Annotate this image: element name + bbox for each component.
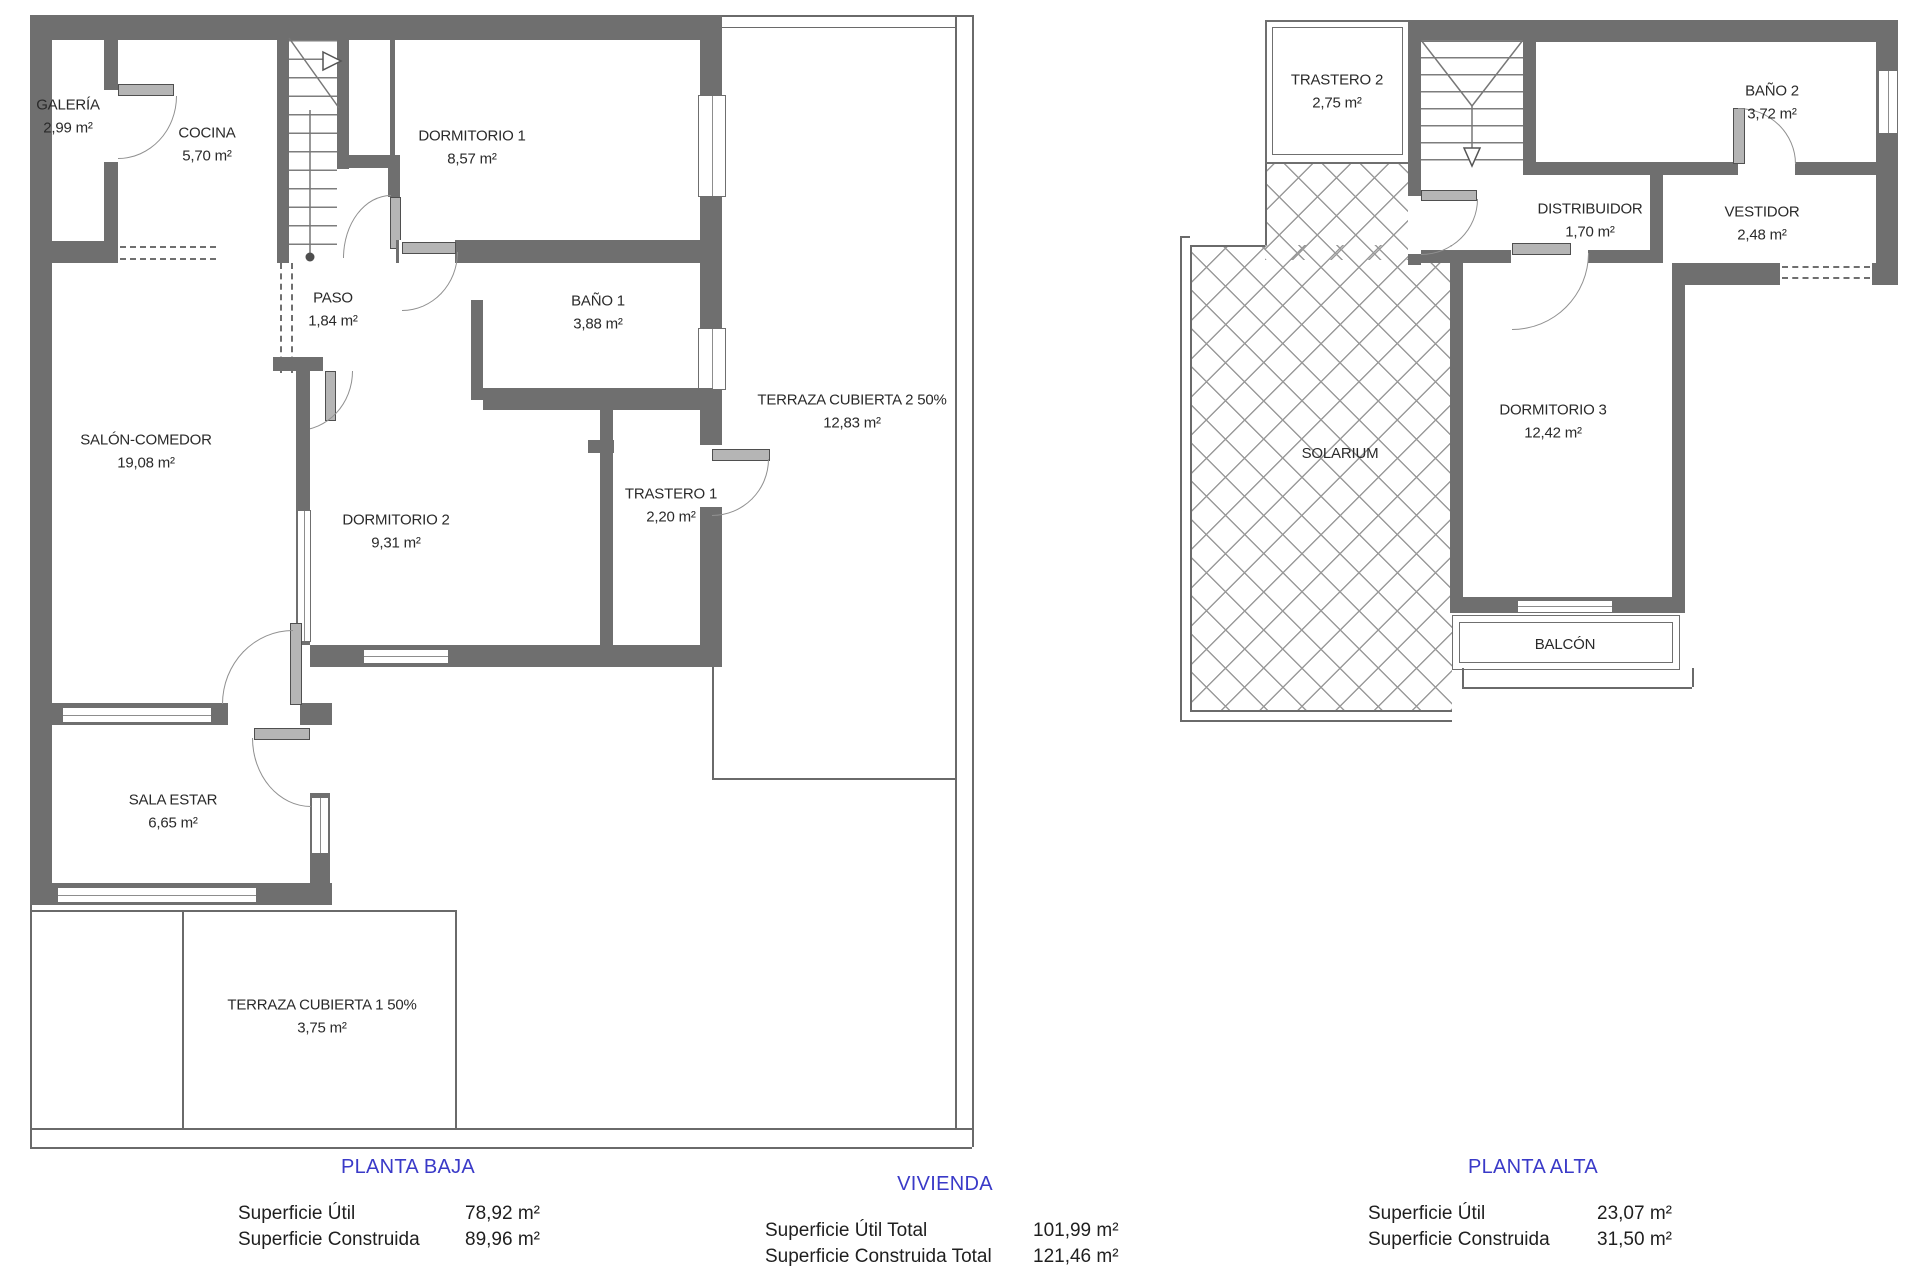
stairs-up-arrow-icon <box>277 30 352 270</box>
wall <box>1523 162 1738 175</box>
summary-title-planta-alta: PLANTA ALTA <box>1368 1155 1698 1179</box>
wall <box>471 300 483 400</box>
wall <box>30 15 722 40</box>
window <box>698 328 726 390</box>
boundary-line <box>1180 236 1182 720</box>
room-area: 2,75 m² <box>1291 92 1383 115</box>
room-area: 8,57 m² <box>418 148 525 171</box>
summary-title-vivienda: VIVIENDA <box>765 1172 1125 1196</box>
room-label-cocina: COCINA 5,70 m² <box>178 123 235 168</box>
door-opening <box>1408 196 1421 254</box>
summary-value: 101,99 m² <box>1033 1218 1119 1244</box>
room-label-distribuidor: DISTRIBUIDOR 1,70 m² <box>1537 199 1642 244</box>
door-opening <box>310 725 330 793</box>
room-area: 5,70 m² <box>178 145 235 168</box>
window <box>311 797 329 854</box>
boundary-line <box>182 910 184 1128</box>
wall <box>483 388 713 410</box>
boundary-line <box>1190 710 1452 712</box>
room-label-bano1: BAÑO 1 3,88 m² <box>571 291 625 336</box>
boundary-line <box>1692 668 1694 687</box>
stairs-down-arrow-icon <box>1421 40 1523 180</box>
room-area: 3,72 m² <box>1745 103 1799 126</box>
summary-row: Superficie Útil Total 101,99 m² <box>765 1218 1125 1244</box>
room-area: 9,31 m² <box>342 532 449 555</box>
summary-value: 31,50 m² <box>1597 1227 1672 1253</box>
room-label-trastero2: TRASTERO 2 2,75 m² <box>1291 70 1383 115</box>
room-label-dormitorio1: DORMITORIO 1 8,57 m² <box>418 126 525 171</box>
door-arc <box>1512 253 1589 330</box>
room-label-dormitorio3: DORMITORIO 3 12,42 m² <box>1499 400 1606 445</box>
dashed-line <box>120 258 216 260</box>
dashed-line <box>120 246 216 248</box>
door-arc <box>222 630 293 704</box>
room-name: PASO <box>308 288 357 311</box>
room-label-galeria: GALERÍA 2,99 m² <box>36 95 100 140</box>
wall <box>273 357 323 371</box>
room-name: TRASTERO 2 <box>1291 70 1383 93</box>
summary-row: Superficie Construida 31,50 m² <box>1368 1227 1698 1253</box>
room-label-terraza-cubierta1: TERRAZA CUBIERTA 1 50% 3,75 m² <box>227 995 416 1040</box>
room-area: 2,99 m² <box>36 117 100 140</box>
summary-label: Superficie Construida <box>238 1227 465 1253</box>
boundary-line <box>30 1147 972 1149</box>
floor-plan-sheet: GALERÍA 2,99 m² COCINA 5,70 m² DORMITORI… <box>0 0 1920 1280</box>
room-name: VESTIDOR <box>1724 202 1799 225</box>
room-label-balcon: BALCÓN <box>1535 634 1596 657</box>
wall <box>1672 263 1685 613</box>
door-arc <box>712 459 769 516</box>
wall <box>1588 250 1650 263</box>
room-label-paso: PASO 1,84 m² <box>308 288 357 333</box>
summary-label: Superficie Útil <box>1368 1201 1597 1227</box>
room-name: SOLARIUM <box>1302 443 1379 466</box>
room-name: BAÑO 1 <box>571 291 625 314</box>
door-arc <box>118 96 177 159</box>
wall <box>1876 20 1898 285</box>
boundary-line <box>1462 687 1692 689</box>
boundary-line <box>1180 720 1452 722</box>
door-leaf <box>118 84 174 96</box>
summary-row: Superficie Construida 89,96 m² <box>238 1227 578 1253</box>
wall <box>390 39 395 155</box>
wall <box>588 440 614 453</box>
boundary-line <box>712 662 714 778</box>
door-opening <box>228 703 300 725</box>
summary-title-planta-baja: PLANTA BAJA <box>238 1155 578 1179</box>
boundary-line <box>1180 236 1190 238</box>
summary-label: Superficie Útil Total <box>765 1218 1033 1244</box>
boundary-line <box>1190 245 1265 247</box>
boundary-line <box>722 15 972 17</box>
boundary-line <box>712 778 955 780</box>
summary-row: Superficie Construida Total 121,46 m² <box>765 1244 1125 1270</box>
summary-label: Superficie Construida Total <box>765 1244 1033 1270</box>
room-area: 3,88 m² <box>571 313 625 336</box>
dashed-line <box>1782 266 1870 268</box>
dwelling-summary: VIVIENDA Superficie Útil Total 101,99 m²… <box>765 1172 1125 1270</box>
room-area: 2,20 m² <box>625 506 717 529</box>
room-name: DORMITORIO 2 <box>342 510 449 533</box>
boundary-line <box>1462 668 1464 687</box>
door-opening <box>104 90 118 162</box>
summary-rows: Superficie Útil Total 101,99 m² Superfic… <box>765 1218 1125 1270</box>
room-area: 19,08 m² <box>80 452 212 475</box>
room-label-vestidor: VESTIDOR 2,48 m² <box>1724 202 1799 247</box>
door-arc <box>252 738 311 807</box>
room-area: 3,75 m² <box>227 1017 416 1040</box>
wall <box>1523 40 1536 175</box>
boundary-line <box>1190 245 1192 710</box>
summary-value: 89,96 m² <box>465 1227 540 1253</box>
room-label-bano2: BAÑO 2 3,72 m² <box>1745 81 1799 126</box>
room-area: 1,70 m² <box>1537 221 1642 244</box>
room-name: BAÑO 2 <box>1745 81 1799 104</box>
door-arc <box>402 252 458 311</box>
wall <box>1650 175 1663 263</box>
room-label-solarium: SOLARIUM <box>1302 443 1379 466</box>
summary-value: 78,92 m² <box>465 1201 540 1227</box>
boundary-line <box>30 905 32 1147</box>
summary-value: 23,07 m² <box>1597 1201 1672 1227</box>
window <box>57 887 257 903</box>
ground-floor-summary: PLANTA BAJA Superficie Útil 78,92 m² Sup… <box>238 1155 578 1253</box>
window <box>62 707 212 723</box>
window <box>1517 600 1613 613</box>
boundary-line <box>1265 160 1267 245</box>
summary-label: Superficie Útil <box>238 1201 465 1227</box>
wall <box>1450 260 1463 613</box>
room-area: 12,83 m² <box>757 412 946 435</box>
room-label-terraza-cubierta2: TERRAZA CUBIERTA 2 50% 12,83 m² <box>757 390 946 435</box>
boundary-line <box>455 910 457 1128</box>
wall <box>30 241 118 263</box>
room-name: DORMITORIO 1 <box>418 126 525 149</box>
boundary-line <box>722 27 955 28</box>
room-name: DISTRIBUIDOR <box>1537 199 1642 222</box>
window <box>363 649 449 664</box>
boundary-line <box>955 15 957 1128</box>
room-name: BALCÓN <box>1535 634 1596 657</box>
dashed-line <box>1782 277 1870 279</box>
room-area: 12,42 m² <box>1499 422 1606 445</box>
solarium-hatch <box>1190 245 1452 710</box>
room-name: TERRAZA CUBIERTA 2 50% <box>757 390 946 413</box>
room-name: TRASTERO 1 <box>625 484 717 507</box>
room-name: COCINA <box>178 123 235 146</box>
boundary-line <box>30 910 455 912</box>
room-name: DORMITORIO 3 <box>1499 400 1606 423</box>
boundary-line <box>30 1128 972 1130</box>
room-name: GALERÍA <box>36 95 100 118</box>
window <box>1878 70 1898 134</box>
room-area: 2,48 m² <box>1724 224 1799 247</box>
summary-rows: Superficie Útil 23,07 m² Superficie Cons… <box>1368 1201 1698 1253</box>
room-area: 1,84 m² <box>308 310 357 333</box>
room-name: SALA ESTAR <box>129 790 218 813</box>
room-label-salon-comedor: SALÓN-COMEDOR 19,08 m² <box>80 430 212 475</box>
wall <box>1795 162 1876 175</box>
window <box>698 95 726 197</box>
room-area: 6,65 m² <box>129 812 218 835</box>
wall <box>30 15 52 905</box>
wall <box>388 155 400 197</box>
room-name: TERRAZA CUBIERTA 1 50% <box>227 995 416 1018</box>
wall <box>1408 20 1898 42</box>
door-arc <box>1421 199 1478 255</box>
room-label-trastero1: TRASTERO 1 2,20 m² <box>625 484 717 529</box>
room-name: SALÓN-COMEDOR <box>80 430 212 453</box>
upper-floor-summary: PLANTA ALTA Superficie Útil 23,07 m² Sup… <box>1368 1155 1698 1253</box>
summary-row: Superficie Útil 78,92 m² <box>238 1201 578 1227</box>
room-label-dormitorio2: DORMITORIO 2 9,31 m² <box>342 510 449 555</box>
summary-row: Superficie Útil 23,07 m² <box>1368 1201 1698 1227</box>
boundary-line <box>972 15 974 1147</box>
room-label-sala-estar: SALA ESTAR 6,65 m² <box>129 790 218 835</box>
summary-label: Superficie Construida <box>1368 1227 1597 1253</box>
summary-rows: Superficie Útil 78,92 m² Superficie Cons… <box>238 1201 578 1253</box>
summary-value: 121,46 m² <box>1033 1244 1119 1270</box>
